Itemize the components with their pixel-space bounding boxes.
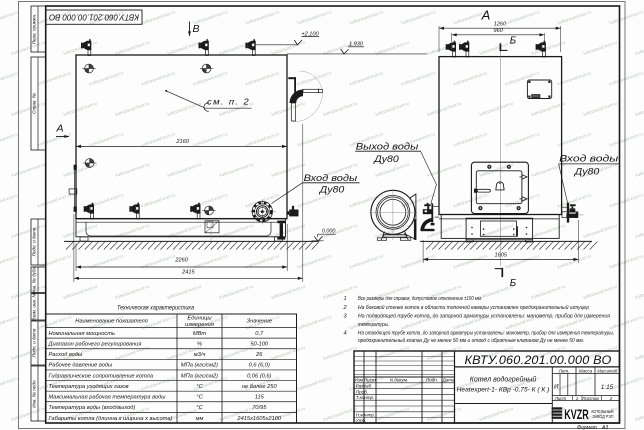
svg-text:960: 960	[493, 28, 503, 34]
svg-text:Ду80: Ду80	[319, 185, 346, 195]
svg-text:Т.контр.: Т.контр.	[356, 395, 375, 400]
svg-text:Диапазон рабочего регулировани: Диапазон рабочего регулирования	[48, 342, 142, 348]
svg-text:МПа (кгс/см2): МПа (кгс/см2)	[181, 373, 218, 379]
svg-text:Подп. и дата: Подп. и дата	[32, 227, 37, 256]
svg-text:Наименование показателя: Наименование показателя	[75, 319, 148, 325]
svg-text:2260: 2260	[174, 258, 188, 264]
svg-text:Рабочее давление воды: Рабочее давление воды	[49, 363, 114, 369]
svg-text:Максимальная рабочая температу: Максимальная рабочая температура воды	[49, 395, 167, 401]
svg-text:м3/ч: м3/ч	[194, 352, 206, 358]
svg-text:Номинальная мощность: Номинальная мощность	[49, 331, 115, 337]
svg-text:Вход воды: Вход воды	[304, 173, 358, 184]
svg-text:70/95: 70/95	[252, 405, 267, 411]
svg-text:Heatexpert-1- КВр -0,75- К ( К: Heatexpert-1- КВр -0,75- К ( К )	[457, 387, 550, 394]
svg-text:А: А	[481, 8, 491, 23]
svg-text:+2.100: +2.100	[301, 31, 319, 37]
svg-text:Взам. инв. №: Взам. инв. №	[32, 293, 37, 321]
svg-text:Температура уходящих газов: Температура уходящих газов	[49, 384, 129, 390]
svg-text:1260: 1260	[494, 22, 507, 28]
svg-text:Дата: Дата	[441, 378, 455, 383]
svg-text:50-100: 50-100	[250, 342, 269, 348]
svg-text:KVZR: KVZR	[564, 407, 589, 422]
svg-text:0.000: 0.000	[322, 228, 336, 234]
svg-text:Котел водогрейный: Котел водогрейный	[470, 376, 537, 384]
svg-text:МВт: МВт	[193, 331, 207, 337]
svg-text:1605: 1605	[495, 252, 508, 258]
svg-text:Лист: Лист	[554, 396, 567, 401]
svg-text:Расход воды: Расход воды	[49, 352, 83, 358]
svg-text:КВТУ.060.201.00.000 ВО: КВТУ.060.201.00.000 ВО	[465, 353, 612, 367]
svg-text:Габариты котла (длинна х ширин: Габариты котла (длинна х ширина х высота…	[49, 416, 173, 422]
svg-text:Единицы: Единицы	[187, 316, 212, 322]
svg-text:Все размеры для справок, допус: Все размеры для справок, допустимое откл…	[358, 296, 482, 302]
svg-text:Масса: Масса	[579, 368, 593, 373]
svg-text:Формат: Формат	[577, 425, 597, 430]
svg-text:N докум.: N докум.	[390, 378, 409, 383]
svg-text:Разраб.: Разраб.	[356, 384, 373, 389]
svg-text:Подп.: Подп.	[426, 378, 438, 383]
svg-text:2160: 2160	[175, 139, 189, 145]
svg-text:1.930: 1.930	[349, 42, 364, 48]
svg-text:предохранительный клапан Ду не: предохранительный клапан Ду не менее 50 …	[358, 337, 584, 344]
svg-text:Ду80: Ду80	[373, 154, 400, 164]
svg-text:115: 115	[255, 395, 265, 401]
svg-text:Б: Б	[510, 278, 517, 289]
svg-text:Лист: Лист	[363, 378, 376, 383]
svg-text:Температура воды (вход/выход): Температура воды (вход/выход)	[49, 405, 136, 411]
svg-text:ЗАВОД РЭП: ЗАВОД РЭП	[593, 414, 614, 419]
svg-text:4: 4	[344, 331, 347, 337]
svg-text:КОТЕЛЬНЫЙ: КОТЕЛЬНЫЙ	[592, 409, 614, 414]
svg-text:Перв. примен.: Перв. примен.	[32, 14, 37, 45]
svg-text:1:15: 1:15	[601, 384, 614, 391]
svg-text:2415х1605х2100: 2415х1605х2100	[236, 416, 281, 422]
svg-text:0,06 (0,6): 0,06 (0,6)	[247, 373, 271, 379]
svg-text:И: И	[554, 383, 559, 390]
svg-text:0,7: 0,7	[255, 331, 264, 337]
svg-text:Лит.: Лит.	[558, 368, 570, 373]
svg-text:Изм: Изм	[355, 378, 364, 383]
svg-text:температуры.: температуры.	[358, 322, 389, 328]
svg-text:мм: мм	[196, 416, 204, 422]
svg-text:2: 2	[609, 396, 613, 401]
svg-text:°С: °С	[196, 405, 203, 411]
svg-text:Проб.: Проб.	[356, 389, 368, 394]
svg-text:°С: °С	[196, 384, 203, 390]
svg-text:Б: Б	[510, 35, 517, 46]
svg-text:Утб.: Утб.	[356, 418, 367, 423]
svg-text:Подп. и дата: Подп. и дата	[32, 328, 37, 357]
svg-text:На отводящей трубе котла ,до з: На отводящей трубе котла ,до запорной ар…	[358, 330, 614, 337]
svg-text:Масштаб: Масштаб	[597, 368, 617, 373]
svg-text:МПа (кгс/см2): МПа (кгс/см2)	[181, 363, 218, 369]
svg-text:Техническая характеристика: Техническая характеристика	[117, 304, 194, 311]
svg-text:26: 26	[255, 352, 263, 358]
svg-text:Ду80: Ду80	[574, 167, 601, 177]
svg-text:Вход воды: Вход воды	[559, 154, 618, 165]
svg-text:%: %	[197, 342, 202, 348]
svg-text:Инв. № дубл.: Инв. № дубл.	[32, 266, 37, 294]
svg-text:Значение: Значение	[247, 319, 273, 325]
svg-text:см. п. 2: см. п. 2	[207, 96, 250, 106]
svg-text:Инв. № подл.: Инв. № подл.	[32, 379, 37, 408]
svg-text:°С: °С	[196, 395, 203, 401]
svg-text:не более 250: не более 250	[242, 384, 278, 390]
svg-text:Н.контр.: Н.контр.	[356, 412, 375, 417]
svg-text:А: А	[55, 123, 63, 135]
svg-text:КВТУ.060.201.00.000 ВО: КВТУ.060.201.00.000 ВО	[49, 12, 139, 22]
svg-text:На боковой стенке котла в обла: На боковой стенке котла в области топочн…	[358, 304, 589, 311]
svg-text:Листов: Листов	[581, 396, 599, 401]
svg-text:0,6 (6,0): 0,6 (6,0)	[249, 363, 270, 369]
svg-text:Справ. №: Справ. №	[32, 93, 37, 114]
svg-text:измерения: измерения	[185, 322, 214, 328]
svg-text:Гидравлическое сопротивление к: Гидравлическое сопротивление котла	[49, 373, 154, 379]
svg-text:2415: 2415	[181, 269, 195, 275]
svg-text:1: 1	[344, 296, 347, 302]
svg-text:На подводящей трубе котла, до: На подводящей трубе котла, до запорной а…	[358, 313, 610, 320]
svg-text:В: В	[192, 23, 199, 35]
svg-text:А3: А3	[601, 425, 608, 430]
